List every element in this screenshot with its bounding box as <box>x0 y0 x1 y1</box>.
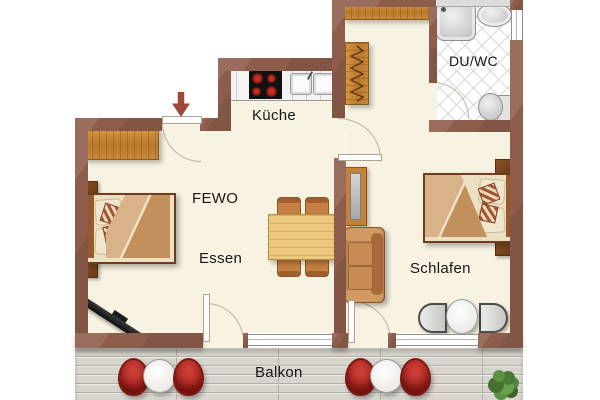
wall-right-a <box>510 0 523 10</box>
wall-hall-upper <box>332 0 345 118</box>
balcony-table <box>370 359 403 393</box>
double-bed-living <box>86 193 176 264</box>
room-label-dining: Essen <box>199 250 242 267</box>
window-dining <box>248 334 332 346</box>
room-label-bedroom: Schlafen <box>410 260 471 277</box>
toilet <box>478 93 511 121</box>
wall-top-left-a <box>75 118 162 131</box>
burner <box>252 73 263 84</box>
room-label-balcony: Balkon <box>255 364 303 381</box>
wall-bath-bottom <box>429 120 523 132</box>
wall-top-left-b <box>200 118 218 131</box>
duvet <box>425 175 487 237</box>
double-bed-bedroom <box>423 173 514 243</box>
hall-door-leaf <box>338 154 382 161</box>
balcony-table <box>143 359 176 393</box>
tv-board-bedroom <box>344 167 367 226</box>
wall-bath-left <box>429 7 437 83</box>
deco-cushion <box>478 203 498 223</box>
sofa-cushion <box>348 242 373 266</box>
floor-plan: Küche DU/WC FEWO Essen Schlafen Balkon <box>0 0 600 400</box>
balcony-chair <box>400 358 431 396</box>
bedroom-chair <box>479 303 508 333</box>
room-label-kitchen: Küche <box>252 107 296 124</box>
kitchen-sink <box>290 73 336 95</box>
cooktop <box>249 70 282 99</box>
plant <box>487 366 521 400</box>
entry-door-leaf <box>162 116 202 124</box>
room-label-bath: DU/WC <box>449 53 498 69</box>
sofa <box>344 227 385 303</box>
burner <box>252 87 261 96</box>
wall-bottom-c <box>332 333 348 348</box>
wardrobe-hall-rail <box>345 42 369 105</box>
wall-bottom-a <box>75 333 203 348</box>
wall-kitchen-top <box>218 58 345 71</box>
window-bathroom <box>511 10 523 40</box>
dining-table <box>268 214 338 260</box>
bedroom-round-table <box>446 299 478 334</box>
headboard <box>88 195 94 258</box>
burner <box>266 86 277 97</box>
balcony-seating-right <box>345 357 427 393</box>
clothes-rail-icon <box>346 43 368 104</box>
toilet-bowl <box>478 93 503 121</box>
dining-chair <box>277 257 301 277</box>
entry-arrow-icon <box>172 92 190 117</box>
wall-right-b <box>510 40 523 348</box>
balcony-door-left-leaf <box>203 294 210 342</box>
window-bedroom <box>396 334 478 346</box>
wall-living-bedroom <box>334 158 346 348</box>
window-band-bath-top <box>436 0 510 7</box>
wall-left <box>75 118 88 348</box>
shower-drain-icon <box>441 7 446 12</box>
balcony-door-right-leaf <box>348 300 355 343</box>
dining-chair <box>305 257 329 277</box>
tv-board-inset <box>350 173 361 220</box>
room-label-apartment: FEWO <box>192 190 238 207</box>
burner <box>267 74 276 83</box>
balcony-seating-left <box>118 357 200 393</box>
wall-bottom-e <box>478 333 523 348</box>
sofa-cushion <box>348 266 373 290</box>
bedroom-chair <box>418 303 447 333</box>
wall-bottom-d <box>388 333 396 348</box>
shower <box>436 2 476 41</box>
balcony-chair <box>173 358 204 396</box>
wardrobe-living <box>84 128 159 160</box>
